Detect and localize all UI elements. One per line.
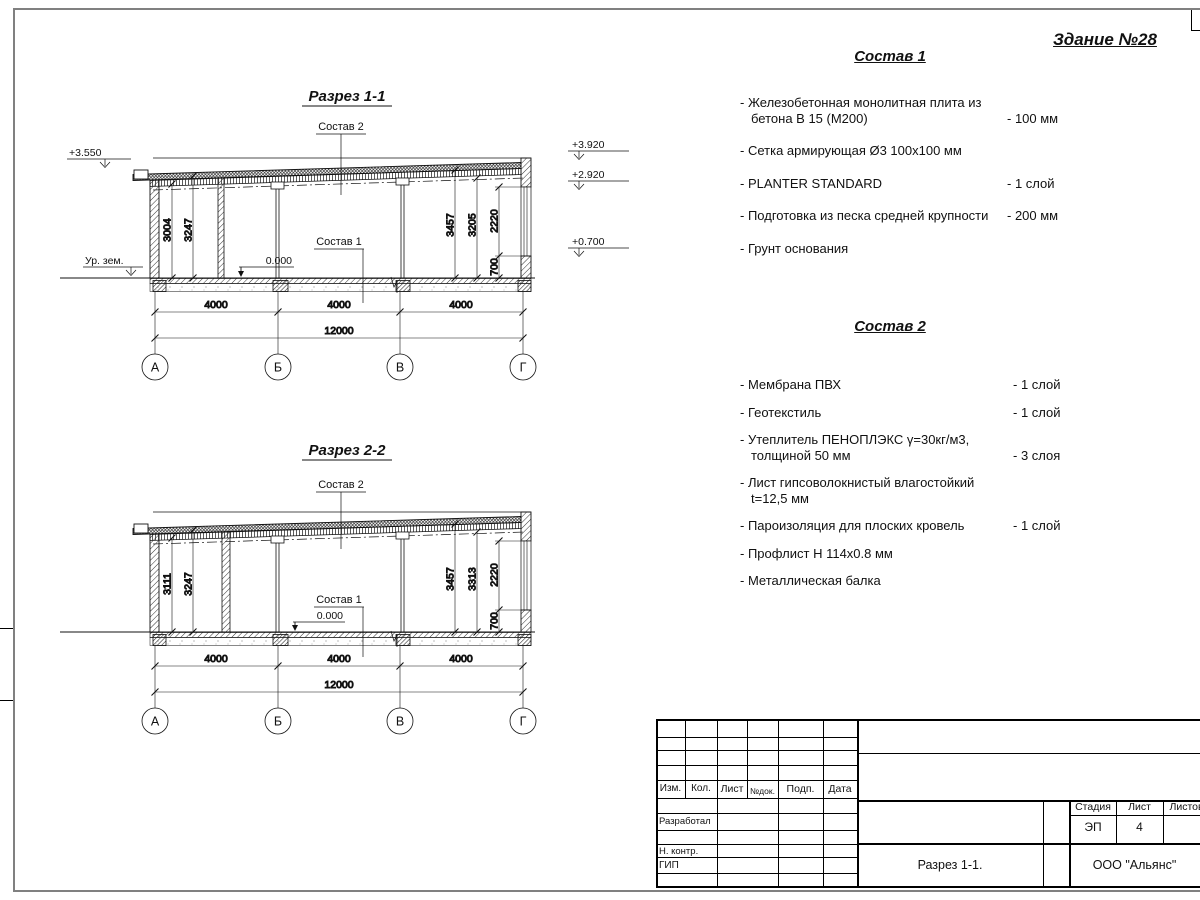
partition-wall	[218, 178, 224, 278]
material-name: PLANTER STANDARD	[740, 176, 1003, 192]
material-name: Железобетонная монолитная плита из бетон…	[740, 95, 1003, 126]
composition-list-2: Состав 2 Мембрана ПВХ - 1 слой Геотексти…	[740, 318, 1080, 601]
dim-label: 4000	[327, 299, 351, 311]
list-item: Лист гипсоволокнистый влагостойкий t=12,…	[740, 475, 1080, 506]
dim-label: 12000	[324, 679, 353, 691]
gutter-box	[134, 170, 148, 179]
svg-text:Разрез 2-2: Разрез 2-2	[308, 442, 386, 459]
elev-right-label: +2.920	[572, 169, 605, 181]
section-title: Разрез 2-2	[302, 442, 392, 460]
axis-label: В	[396, 715, 404, 729]
material-value: - 1 слой	[1003, 176, 1055, 192]
zero-level-label: 0.000	[317, 610, 343, 622]
axis-label: В	[396, 361, 404, 375]
frame-bottom	[13, 890, 1200, 892]
composition-list-1: Состав 1 Железобетонная монолитная плита…	[740, 48, 1080, 273]
dim-label: 3247	[183, 572, 195, 596]
foundation-block	[396, 635, 410, 646]
material-name: Профлист Н 114х0.8 мм	[740, 546, 1009, 562]
material-name: Пароизоляция для плоских кровель	[740, 518, 1009, 534]
list-item: Подготовка из песка средней крупности - …	[740, 208, 1080, 224]
elev-right-label: +3.920	[572, 139, 605, 151]
material-name: Геотекстиль	[740, 405, 1009, 421]
dim-label: 4000	[204, 653, 228, 665]
dim-label: 3457	[445, 567, 457, 591]
foundation-block	[518, 281, 531, 292]
material-value: - 1 слой	[1009, 405, 1061, 421]
svg-text:Разрез 1-1: Разрез 1-1	[308, 88, 385, 105]
dim-label: 2220	[489, 209, 501, 233]
list-item: Утеплитель ПЕНОПЛЭКС γ=30кг/м3, толщиной…	[740, 432, 1080, 463]
dim-label: 3247	[183, 218, 195, 242]
material-name: Подготовка из песка средней крупности	[740, 208, 1003, 224]
material-name: Лист гипсоволокнистый влагостойкий t=12,…	[740, 475, 1009, 506]
dim-label: 700	[489, 612, 501, 630]
foundation-block	[153, 281, 166, 292]
sostav2-callout: Состав 2	[318, 479, 364, 491]
window-opening	[521, 541, 531, 610]
dim-label: 4000	[449, 653, 473, 665]
company-name: ООО "Альянс"	[1069, 858, 1200, 872]
col-podp: Подп.	[778, 783, 823, 795]
list-item: Геотекстиль - 1 слой	[740, 405, 1080, 421]
col-ndok: №док.	[747, 786, 778, 796]
section-1-1-drawing: Разрез 1-1	[55, 75, 635, 405]
col-list: Лист	[717, 783, 747, 795]
col-data: Дата	[823, 783, 857, 795]
frame-left	[13, 8, 15, 892]
role-nkontr: Н. контр.	[659, 846, 698, 857]
right-parapet	[521, 158, 531, 187]
partition-wall	[222, 532, 230, 632]
elev-right-label: +0.700	[572, 236, 605, 248]
column-capital	[271, 536, 284, 543]
dim-label: 3111	[162, 573, 174, 595]
material-value: - 200 мм	[1003, 208, 1058, 224]
sostav1-callout: Состав 1	[316, 236, 362, 248]
dim-label: 2220	[489, 563, 501, 587]
material-value: - 1 слой	[1009, 377, 1061, 393]
ground-level-label: Ур. зем.	[85, 255, 124, 267]
axis-label: Г	[520, 361, 527, 375]
stage-value: ЭП	[1070, 820, 1116, 834]
column-capital	[271, 182, 284, 189]
dim-label: 3004	[162, 218, 174, 242]
column-capital	[396, 178, 409, 185]
material-name: Мембрана ПВХ	[740, 377, 1009, 393]
axis-label: Б	[274, 361, 282, 375]
list-title: Состав 1	[740, 48, 1040, 65]
foundation-block	[396, 281, 410, 292]
role-gip: ГИП	[659, 860, 679, 871]
right-parapet	[521, 512, 531, 541]
list-title: Состав 2	[740, 318, 1040, 335]
horizontal-dimensions: 4000 4000 4000 12000	[152, 292, 527, 354]
window-sill-wall	[521, 256, 531, 278]
list-item: PLANTER STANDARD - 1 слой	[740, 176, 1080, 192]
sheet-value: 4	[1116, 820, 1163, 834]
sand-layer	[150, 284, 531, 292]
window-sill-wall	[521, 610, 531, 632]
floor	[60, 277, 535, 293]
axis-label: Г	[520, 715, 527, 729]
list-item: Металлическая балка	[740, 573, 1080, 589]
left-wall	[150, 534, 159, 632]
dim-label: 4000	[327, 653, 351, 665]
list-item: Мембрана ПВХ - 1 слой	[740, 377, 1080, 393]
column-capital	[396, 532, 409, 539]
dim-label: 4000	[449, 299, 473, 311]
sostav1-callout: Состав 1	[316, 594, 362, 606]
section-2-2-drawing: Разрез 2-2	[55, 429, 635, 759]
material-name: Сетка армирующая Ø3 100х100 мм	[740, 143, 1003, 159]
window-opening	[521, 187, 531, 256]
material-value: - 100 мм	[1003, 111, 1058, 127]
list-item: Сетка армирующая Ø3 100х100 мм	[740, 143, 1080, 159]
col-kol: Кол.	[685, 783, 717, 794]
axis-label: А	[151, 361, 160, 375]
elev-left-label: +3.550	[69, 147, 102, 159]
stage-label: Стадия	[1070, 801, 1116, 813]
axis-bubbles: А Б В Г	[142, 708, 536, 734]
role-razrabotal: Разработал	[659, 816, 711, 827]
gutter-box	[134, 524, 148, 533]
dim-label: 3205	[467, 213, 479, 237]
floor	[60, 631, 535, 647]
sheet-label: Лист	[1116, 801, 1163, 813]
list-item: Профлист Н 114х0.8 мм	[740, 546, 1080, 562]
doc-title: Разрез 1-1.	[857, 858, 1043, 872]
axis-label: А	[151, 715, 160, 729]
dim-label: 3313	[467, 567, 479, 591]
dim-label: 12000	[324, 325, 353, 337]
zero-level-label: 0.000	[266, 255, 292, 267]
corner-box-line-v	[1191, 10, 1192, 31]
list-item: Грунт основания	[740, 241, 1080, 257]
dim-label: 700	[489, 258, 501, 276]
corner-box-line-h	[1191, 30, 1200, 31]
layer-callouts: Состав 2 Состав 1 0.000	[292, 479, 366, 657]
fold-mark-1	[0, 628, 13, 629]
left-wall	[150, 180, 159, 278]
col-izm: Изм.	[656, 783, 685, 794]
material-name: Металлическая балка	[740, 573, 1009, 589]
foundation-block	[518, 635, 531, 646]
foundation-block	[273, 281, 288, 292]
frame-top	[13, 8, 1200, 10]
material-value: - 1 слой	[1009, 518, 1061, 534]
building-title: Здание №28	[1040, 30, 1170, 50]
material-value: - 3 слоя	[1009, 448, 1060, 464]
horizontal-dimensions: 4000 4000 4000 12000	[152, 646, 527, 708]
material-name: Грунт основания	[740, 241, 1003, 257]
dim-label: 3457	[445, 213, 457, 237]
list-item: Железобетонная монолитная плита из бетон…	[740, 95, 1080, 126]
dim-label: 4000	[204, 299, 228, 311]
sostav2-callout: Состав 2	[318, 121, 364, 133]
sheets-label: Листов	[1163, 801, 1200, 813]
foundation-block	[153, 635, 166, 646]
axis-label: Б	[274, 715, 282, 729]
sand-layer	[150, 638, 531, 646]
axis-bubbles: А Б В Г	[142, 354, 536, 380]
layer-callouts: Состав 2 Состав 1 0.000	[238, 121, 366, 303]
section-title: Разрез 1-1	[302, 88, 392, 106]
drawing-sheet: Здание №28 Разрез 1-1	[0, 0, 1200, 900]
material-name: Утеплитель ПЕНОПЛЭКС γ=30кг/м3, толщиной…	[740, 432, 1009, 463]
list-item: Пароизоляция для плоских кровель - 1 сло…	[740, 518, 1080, 534]
foundation-block	[273, 635, 288, 646]
fold-mark-2	[0, 700, 13, 701]
